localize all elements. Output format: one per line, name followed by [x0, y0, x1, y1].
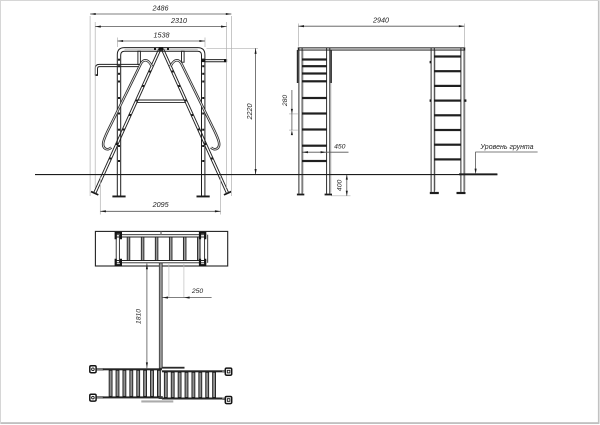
- svg-text:2095: 2095: [152, 200, 170, 209]
- svg-text:2310: 2310: [170, 16, 187, 25]
- svg-text:1810: 1810: [136, 309, 143, 324]
- svg-text:2940: 2940: [372, 16, 389, 25]
- svg-text:Уровень грунта: Уровень грунта: [479, 144, 533, 151]
- svg-text:2220: 2220: [245, 103, 254, 120]
- svg-text:250: 250: [191, 288, 204, 295]
- svg-text:450: 450: [334, 143, 346, 150]
- svg-text:280: 280: [282, 95, 289, 108]
- svg-text:400: 400: [337, 180, 344, 192]
- svg-text:1538: 1538: [154, 30, 170, 39]
- svg-text:2486: 2486: [152, 3, 169, 12]
